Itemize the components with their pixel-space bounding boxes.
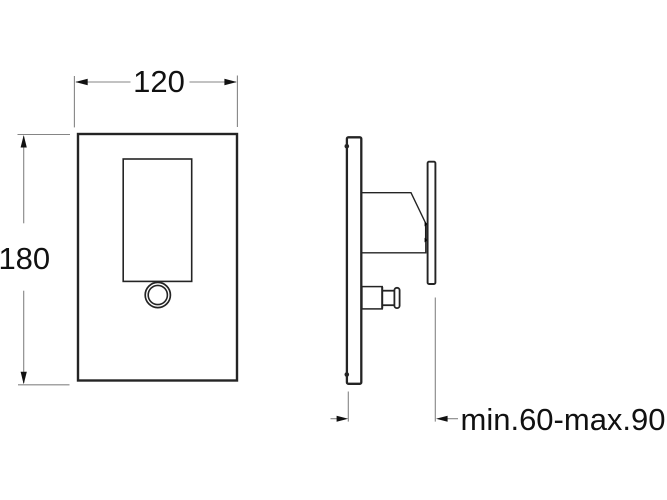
svg-text:120: 120 bbox=[133, 64, 185, 99]
svg-text:min.60-max.90: min.60-max.90 bbox=[461, 402, 666, 437]
svg-text:180: 180 bbox=[0, 241, 50, 276]
